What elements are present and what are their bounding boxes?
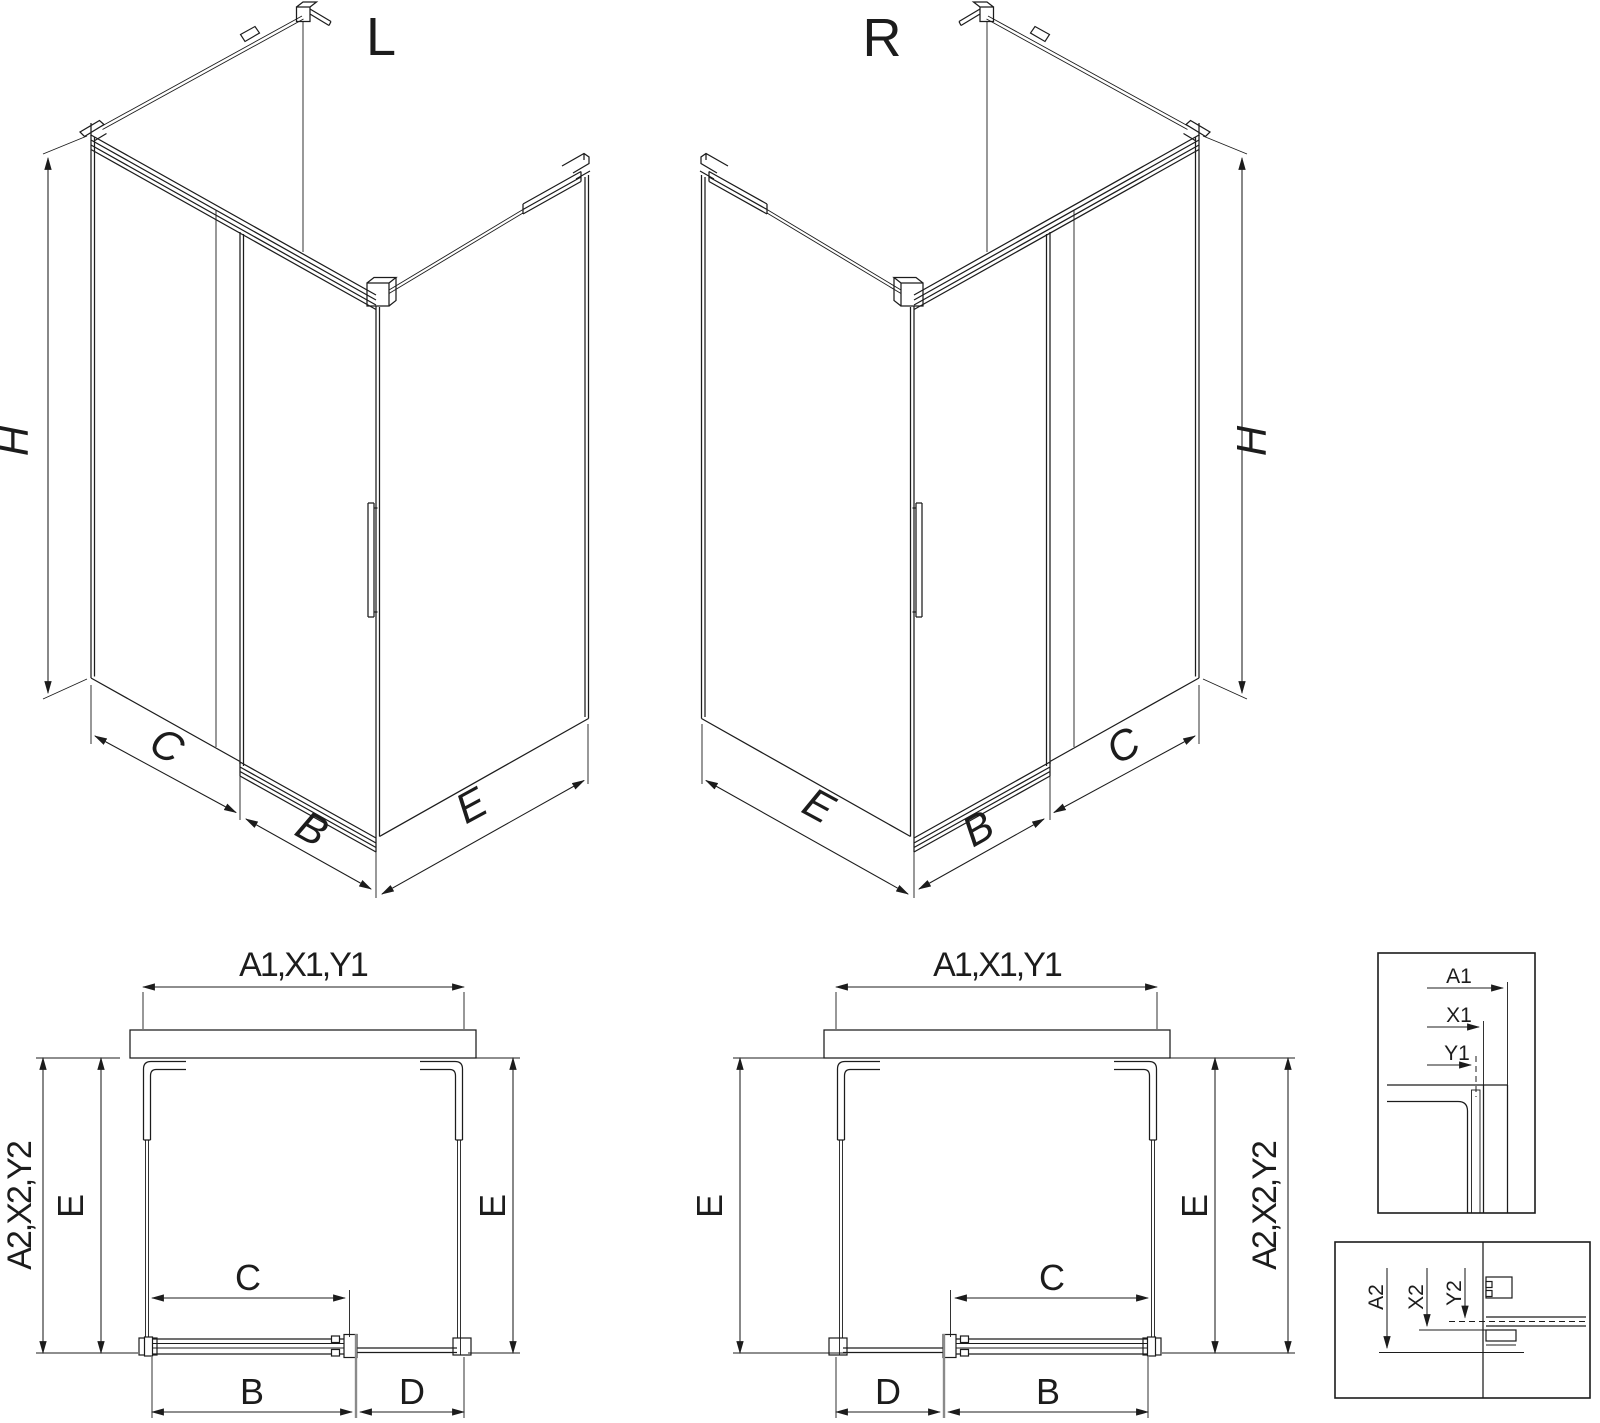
plan-right-dim-a1-label: A1,X1,Y1 bbox=[933, 946, 1062, 984]
plan-left-dim-e-left-label: E bbox=[50, 1194, 91, 1218]
plan-right-dim-e-left-label: E bbox=[689, 1194, 730, 1218]
iso-left-dim-c-label: C bbox=[142, 717, 192, 773]
technical-drawing-page: L H C B E R H C B E A1,X1,Y1 A2,X2,Y2 E … bbox=[0, 0, 1600, 1423]
plan-left-dim-b-label: B bbox=[240, 1371, 264, 1412]
detail-x1-label: X1 bbox=[1446, 1004, 1472, 1027]
shower-enclosure-diagram: L H C B E R H C B E A1,X1,Y1 A2,X2,Y2 E … bbox=[0, 0, 1600, 1423]
detail-box-depth: A2 X2 Y2 bbox=[1335, 1242, 1590, 1398]
iso-left-dim-e-label: E bbox=[448, 777, 496, 832]
plan-left-dim-a1-label: A1,X1,Y1 bbox=[239, 946, 368, 984]
iso-view-right: R H C B E bbox=[700, 2, 1275, 898]
plan-left-dim-d-label: D bbox=[399, 1371, 425, 1412]
detail-y1-label: Y1 bbox=[1444, 1042, 1470, 1065]
plan-right-dim-a2-label: A2,X2,Y2 bbox=[1246, 1141, 1284, 1270]
plan-right-dim-b-label: B bbox=[1036, 1371, 1060, 1412]
plan-right-dim-a1-extensions bbox=[836, 992, 1157, 1029]
detail-y2-label: Y2 bbox=[1443, 1280, 1466, 1306]
detail-width-glass bbox=[1472, 1090, 1481, 1213]
plan-right-dim-c-label: C bbox=[1039, 1257, 1065, 1298]
plan-left-dim-c-label: C bbox=[235, 1257, 261, 1298]
iso-left-body bbox=[43, 2, 590, 898]
iso-left-dim-b-label: B bbox=[288, 801, 336, 856]
detail-a2-label: A2 bbox=[1365, 1284, 1388, 1310]
iso-right-dim-h-label: H bbox=[1228, 425, 1275, 456]
detail-x2-label: X2 bbox=[1405, 1284, 1428, 1310]
detail-a1-label: A1 bbox=[1446, 965, 1472, 988]
iso-right-title: R bbox=[863, 8, 902, 68]
detail-depth-profile-notch1 bbox=[1486, 1282, 1492, 1288]
iso-right-dim-e-label: E bbox=[795, 778, 843, 833]
iso-left-dim-h-label: H bbox=[0, 425, 37, 456]
detail-depth-profile-lines bbox=[1486, 1345, 1524, 1353]
iso-right-body bbox=[700, 2, 1247, 898]
plan-view-left: A1,X1,Y1 A2,X2,Y2 E E C B D bbox=[1, 946, 520, 1418]
plan-right-dim-left-extensions bbox=[733, 1058, 846, 1353]
iso-right-dim-b-label: B bbox=[954, 801, 1002, 856]
iso-left-title: L bbox=[366, 7, 396, 67]
plan-right-body bbox=[824, 1030, 1170, 1418]
detail-box-width: A1 X1 Y1 bbox=[1378, 953, 1535, 1213]
plan-right-dim-d-label: D bbox=[875, 1371, 901, 1412]
plan-left-body bbox=[130, 1030, 476, 1418]
plan-left-dim-a2-label: A2,X2,Y2 bbox=[1, 1141, 39, 1270]
plan-view-right: A1,X1,Y1 E E A2,X2,Y2 C B D bbox=[689, 946, 1295, 1418]
detail-depth-frame bbox=[1335, 1242, 1590, 1398]
plan-left-dim-a1-extensions bbox=[143, 992, 464, 1029]
detail-depth-profile-notch2 bbox=[1486, 1291, 1492, 1297]
detail-width-frame bbox=[1378, 953, 1535, 1213]
plan-left-dim-e-right-label: E bbox=[472, 1194, 513, 1218]
detail-depth-profile-bottom bbox=[1486, 1330, 1516, 1341]
iso-right-dim-c-label: C bbox=[1098, 717, 1148, 773]
detail-width-extensions bbox=[1484, 982, 1508, 1085]
iso-view-left: L H C B E bbox=[0, 2, 590, 898]
detail-width-profile bbox=[1387, 1085, 1508, 1213]
plan-right-dim-e-right-label: E bbox=[1174, 1194, 1215, 1218]
